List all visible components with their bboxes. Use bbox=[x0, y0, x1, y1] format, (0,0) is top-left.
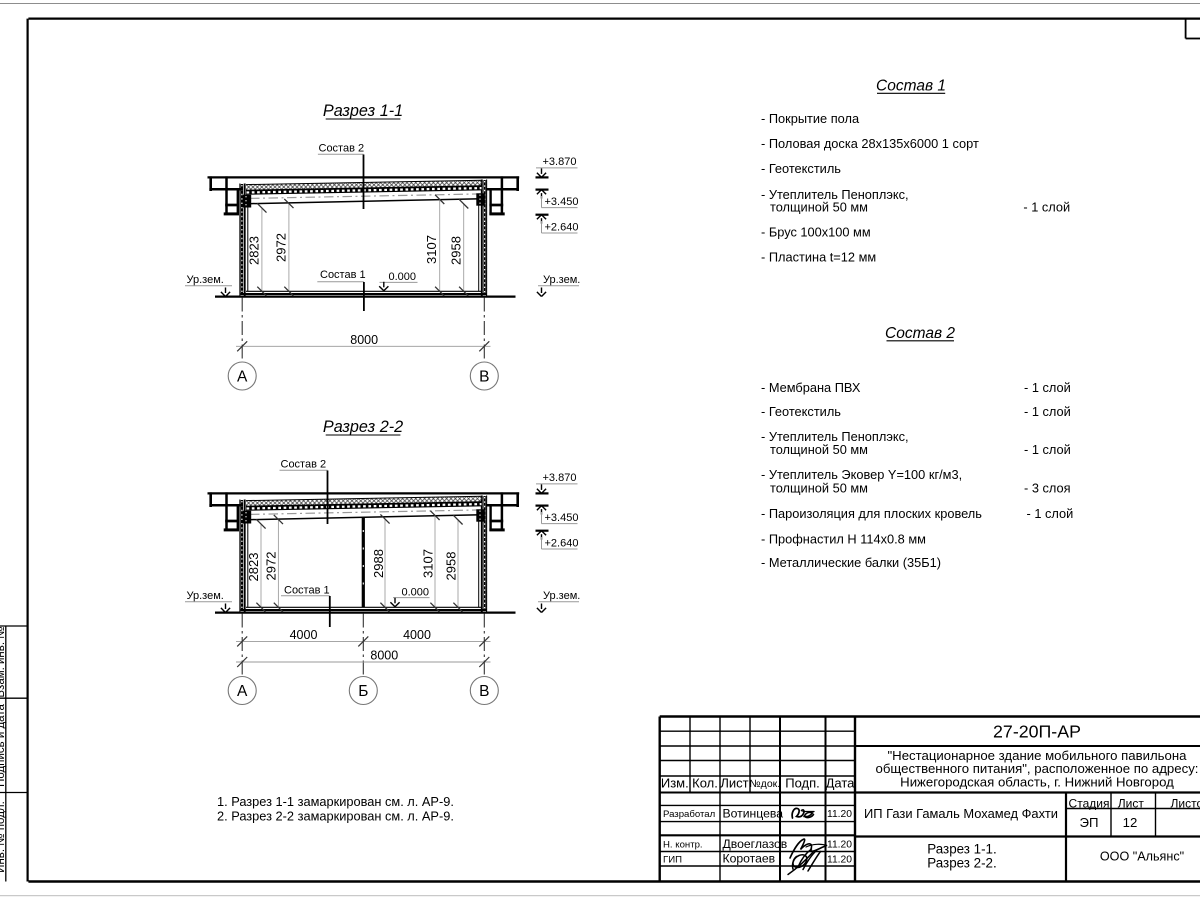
svg-text:- Мембрана ПВХ: - Мембрана ПВХ bbox=[761, 380, 861, 395]
svg-text:Нижегородская область, г. Нижн: Нижегородская область, г. Нижний Новгоро… bbox=[900, 775, 1174, 790]
svg-text:Разрез 1-1: Разрез 1-1 bbox=[323, 102, 403, 120]
svg-text:- 1 слой: - 1 слой bbox=[1023, 200, 1070, 215]
svg-text:Листов: Листов bbox=[1171, 796, 1200, 810]
svg-text:- Пароизоляция для плоских кро: - Пароизоляция для плоских кровель bbox=[761, 506, 982, 521]
svg-text:- Покрытие пола: - Покрытие пола bbox=[761, 111, 860, 126]
svg-text:толщиной 50 мм: толщиной 50 мм bbox=[770, 442, 868, 457]
svg-text:Вотинцева: Вотинцева bbox=[723, 807, 784, 821]
svg-text:8000: 8000 bbox=[350, 333, 378, 347]
svg-text:- 1 слой: - 1 слой bbox=[1024, 380, 1071, 395]
svg-text:Ур.зем.: Ур.зем. bbox=[543, 274, 580, 286]
svg-text:А: А bbox=[237, 683, 248, 700]
svg-text:Лист: Лист bbox=[1118, 796, 1145, 810]
svg-text:- 1 слой: - 1 слой bbox=[1027, 506, 1074, 521]
svg-text:ИП Гази Гамаль Мохамед Фахти: ИП Гази Гамаль Мохамед Фахти bbox=[864, 806, 1058, 821]
svg-text:11.20: 11.20 bbox=[827, 854, 852, 865]
svg-text:- Пластина t=12 мм: - Пластина t=12 мм bbox=[761, 250, 876, 265]
svg-text:- 1 слой: - 1 слой bbox=[1024, 404, 1071, 419]
svg-text:толщиной 50 мм: толщиной 50 мм bbox=[770, 200, 868, 215]
svg-text:+3.450: +3.450 bbox=[545, 196, 579, 208]
svg-text:Инв. № подл.: Инв. № подл. bbox=[0, 801, 7, 873]
svg-text:12: 12 bbox=[1123, 815, 1138, 830]
svg-text:Разрез 2-2.: Разрез 2-2. bbox=[927, 855, 996, 870]
svg-text:- Брус 100х100 мм: - Брус 100х100 мм bbox=[761, 225, 871, 240]
svg-text:Стадия: Стадия bbox=[1069, 796, 1110, 810]
svg-text:Состав 1: Состав 1 bbox=[876, 78, 946, 95]
svg-text:ГИП: ГИП bbox=[663, 854, 682, 865]
svg-text:Состав 1: Состав 1 bbox=[320, 269, 366, 281]
svg-text:11.20: 11.20 bbox=[827, 840, 852, 851]
svg-text:- Геотекстиль: - Геотекстиль bbox=[761, 404, 841, 419]
svg-text:2988: 2988 bbox=[371, 549, 386, 578]
svg-text:- Геотекстиль: - Геотекстиль bbox=[761, 161, 841, 176]
svg-text:2972: 2972 bbox=[263, 552, 278, 581]
svg-text:27-20П-АР: 27-20П-АР bbox=[993, 722, 1081, 742]
svg-text:1. Разрез 1-1 замаркирован см.: 1. Разрез 1-1 замаркирован см. л. АР-9. bbox=[217, 794, 454, 809]
svg-text:Изм.: Изм. bbox=[661, 776, 689, 791]
svg-text:8000: 8000 bbox=[370, 649, 398, 663]
svg-text:+2.640: +2.640 bbox=[545, 538, 579, 550]
svg-text:2823: 2823 bbox=[246, 553, 261, 582]
svg-text:Состав 2: Состав 2 bbox=[885, 325, 955, 342]
svg-text:Н. контр.: Н. контр. bbox=[663, 840, 703, 851]
svg-text:- 1 слой: - 1 слой bbox=[1024, 442, 1071, 457]
svg-text:Разработал: Разработал bbox=[663, 809, 715, 820]
svg-text:2. Разрез 2-2 замаркирован см.: 2. Разрез 2-2 замаркирован см. л. АР-9. bbox=[217, 808, 454, 823]
svg-text:3107: 3107 bbox=[424, 235, 439, 264]
svg-text:0.000: 0.000 bbox=[402, 587, 430, 599]
svg-text:0.000: 0.000 bbox=[389, 271, 417, 283]
svg-text:Подпись и дата: Подпись и дата bbox=[0, 704, 7, 787]
svg-text:4000: 4000 bbox=[290, 628, 318, 642]
svg-text:Лист: Лист bbox=[720, 776, 748, 791]
svg-text:Ур.зем.: Ур.зем. bbox=[543, 590, 580, 602]
svg-text:Ур.зем.: Ур.зем. bbox=[187, 590, 224, 602]
svg-text:№док.: №док. bbox=[749, 778, 780, 790]
svg-text:+3.450: +3.450 bbox=[545, 512, 579, 524]
svg-text:Состав 2: Состав 2 bbox=[319, 143, 365, 155]
svg-text:- Половая доска 28х135х6000 1: - Половая доска 28х135х6000 1 сорт bbox=[761, 136, 979, 151]
svg-text:ЭП: ЭП bbox=[1080, 815, 1099, 830]
svg-text:Подп.: Подп. bbox=[785, 776, 820, 791]
svg-text:А: А bbox=[237, 368, 248, 385]
svg-text:11.20: 11.20 bbox=[827, 809, 852, 820]
svg-text:толщиной 50 мм: толщиной 50 мм bbox=[770, 481, 868, 496]
svg-text:ООО "Альянс": ООО "Альянс" bbox=[1100, 850, 1184, 864]
svg-text:Двоеглазов: Двоеглазов bbox=[723, 837, 788, 851]
svg-text:+2.640: +2.640 bbox=[545, 222, 579, 234]
svg-text:4000: 4000 bbox=[403, 628, 431, 642]
svg-text:+3.870: +3.870 bbox=[543, 156, 577, 168]
svg-text:В: В bbox=[479, 368, 489, 385]
svg-text:Ур.зем.: Ур.зем. bbox=[187, 274, 224, 286]
svg-text:2972: 2972 bbox=[274, 233, 289, 262]
svg-text:2958: 2958 bbox=[448, 236, 463, 265]
svg-text:Кол.: Кол. bbox=[692, 776, 718, 791]
svg-text:+3.870: +3.870 bbox=[543, 472, 577, 484]
svg-text:- 3 слоя: - 3 слоя bbox=[1024, 481, 1071, 496]
svg-text:Взам. инв. №: Взам. инв. № bbox=[0, 626, 7, 697]
svg-text:- Металлические балки (35Б1): - Металлические балки (35Б1) bbox=[761, 555, 941, 570]
svg-text:2958: 2958 bbox=[444, 552, 459, 581]
svg-text:- Профнастил Н 114х0.8 мм: - Профнастил Н 114х0.8 мм bbox=[761, 532, 926, 547]
svg-text:Состав 1: Состав 1 bbox=[284, 585, 330, 597]
svg-text:Дата: Дата bbox=[826, 776, 856, 791]
svg-text:Коротаев: Коротаев bbox=[723, 851, 776, 865]
svg-text:Разрез 2-2: Разрез 2-2 bbox=[323, 418, 403, 436]
svg-text:3107: 3107 bbox=[421, 549, 436, 578]
svg-text:В: В bbox=[479, 683, 489, 700]
svg-text:2823: 2823 bbox=[247, 236, 262, 265]
svg-text:Б: Б bbox=[358, 683, 368, 700]
svg-text:Состав 2: Состав 2 bbox=[281, 459, 327, 471]
